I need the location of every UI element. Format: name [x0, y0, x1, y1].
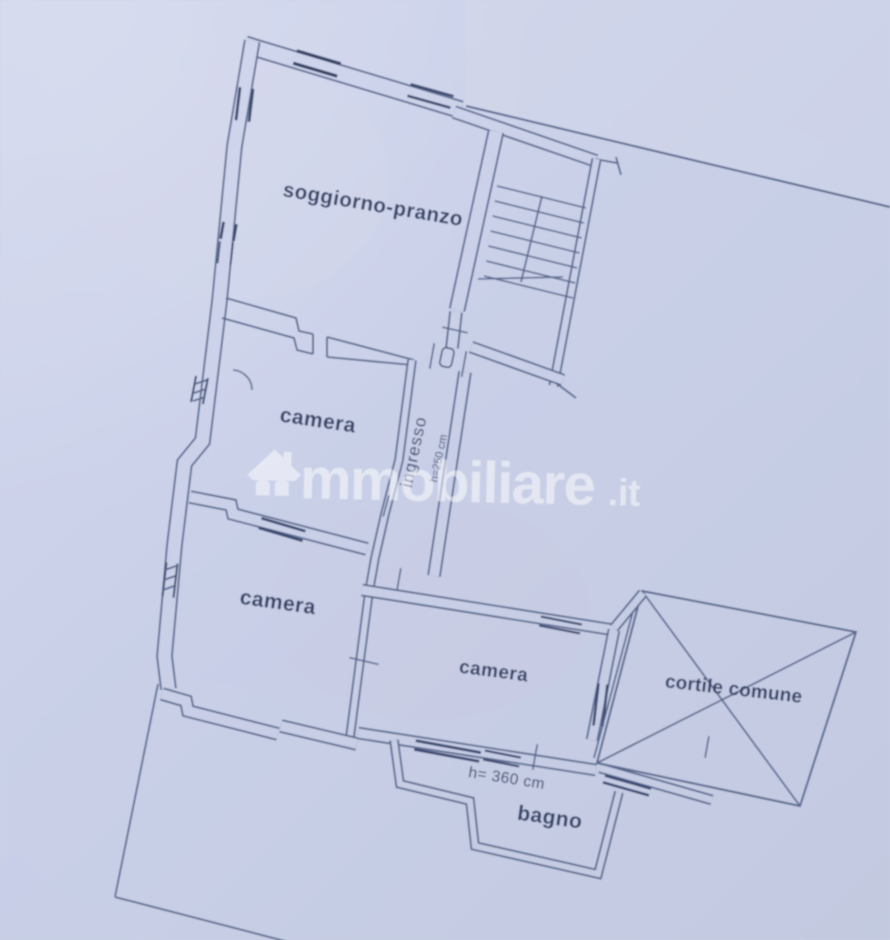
svg-text:mmobiliare: mmobiliare — [299, 446, 595, 518]
svg-text:.it: .it — [607, 472, 641, 515]
